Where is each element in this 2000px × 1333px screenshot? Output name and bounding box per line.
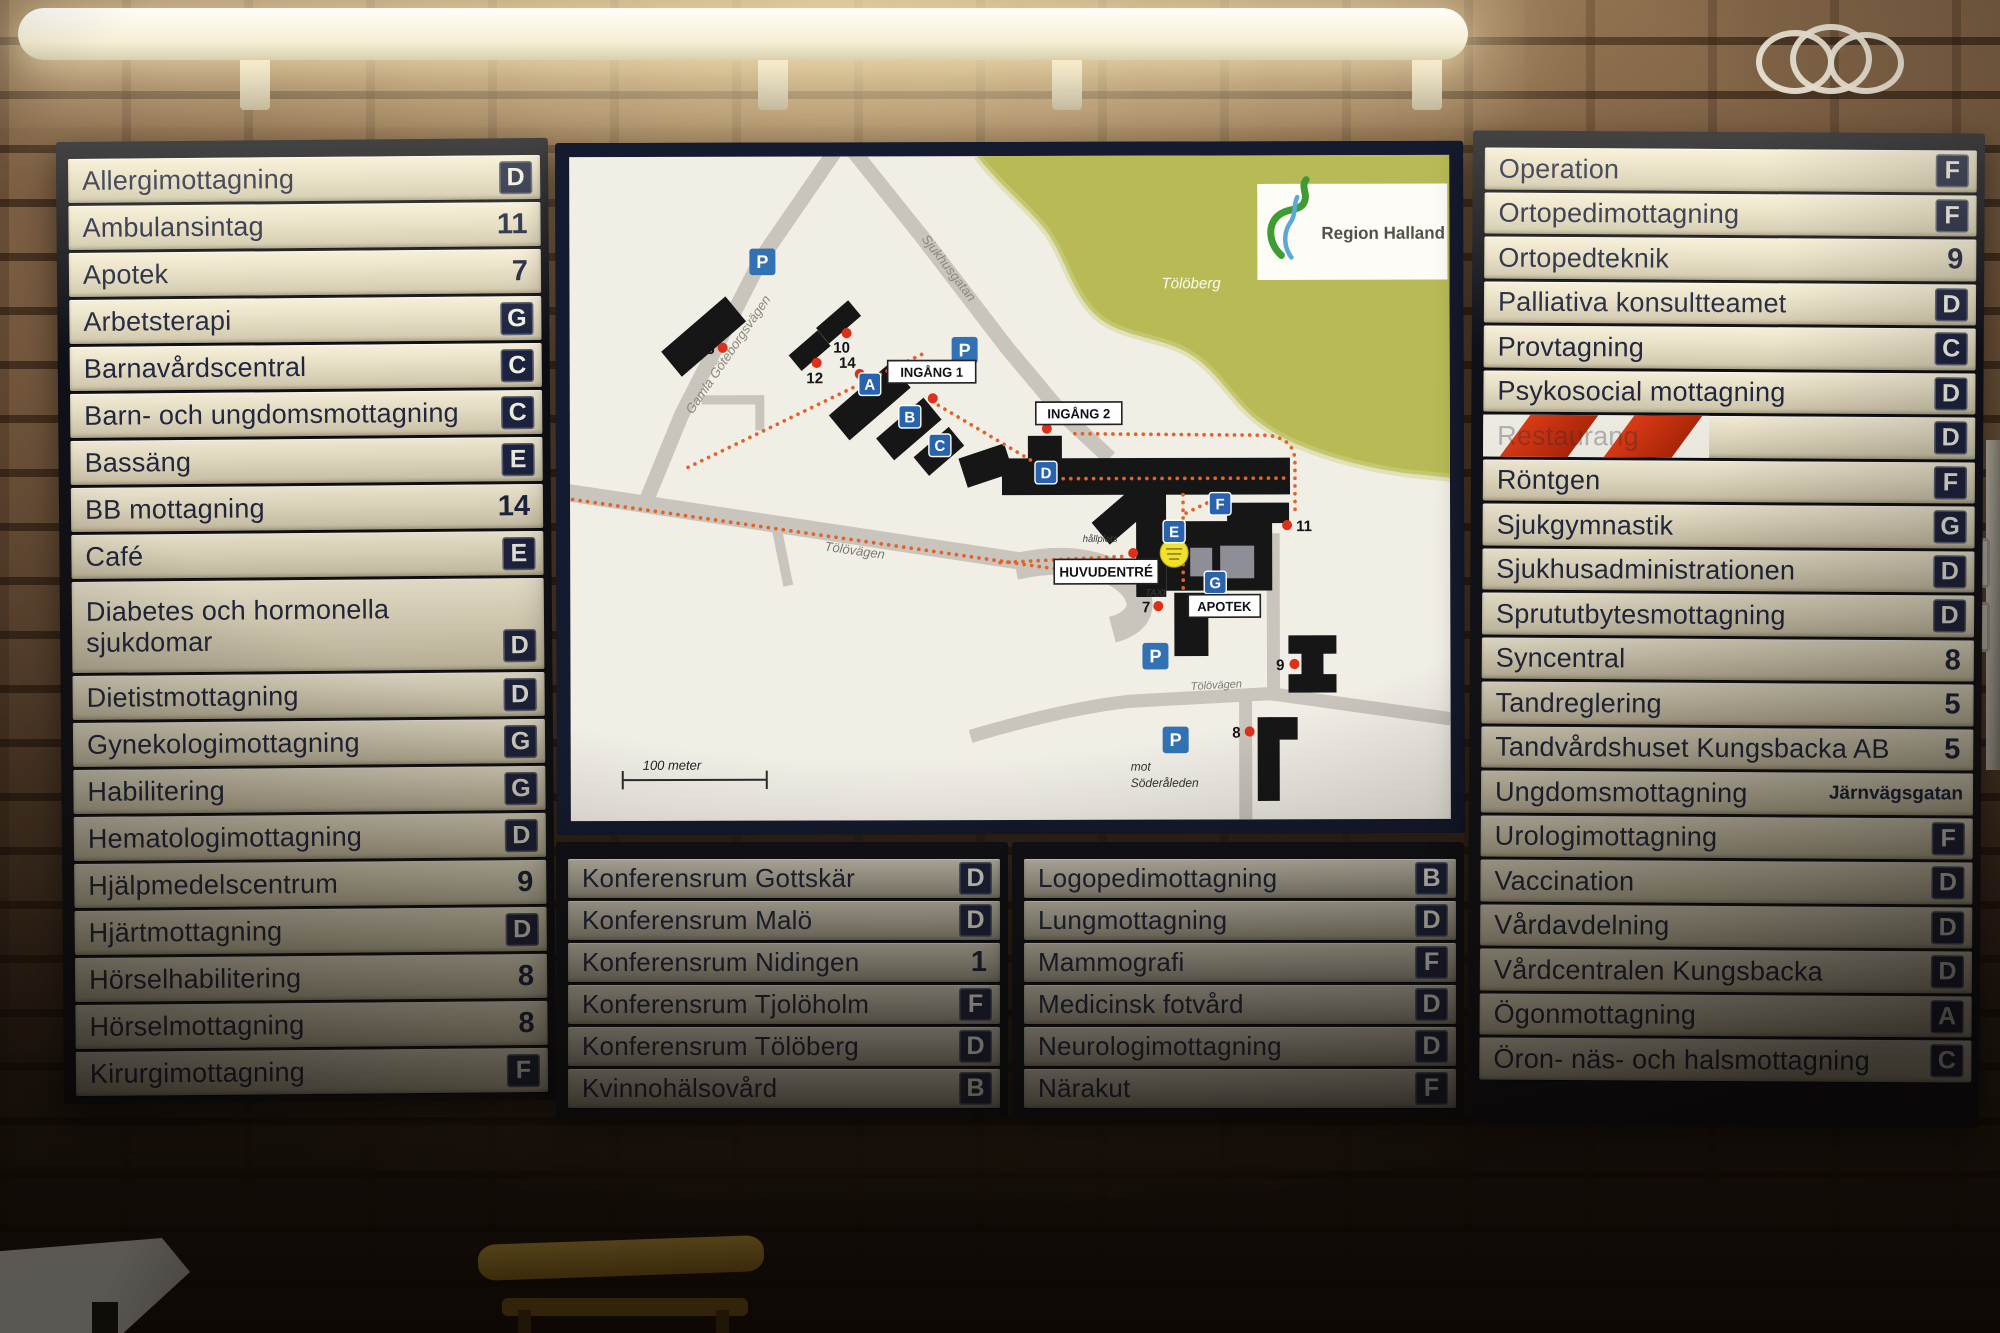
row-code: F bbox=[1910, 199, 1976, 232]
row-label: Apotek bbox=[69, 256, 475, 290]
row-label: Café bbox=[71, 538, 477, 572]
row-label: Psykosocial mottagning bbox=[1483, 376, 1909, 409]
directory-row: Hjärtmottagning D bbox=[75, 907, 547, 955]
row-label: Ögonmottagning bbox=[1480, 999, 1906, 1032]
clinics-directory-board: Logopedimottagning B Lungmottagning D Ma… bbox=[1012, 842, 1464, 1118]
directory-row: Tandreglering 5 bbox=[1481, 682, 1973, 727]
directory-row: Ambulansintag 11 bbox=[68, 202, 540, 250]
directory-row: Logopedimottagning B bbox=[1024, 859, 1456, 898]
directory-row: Barn- och ungdomsmottagning C bbox=[70, 390, 542, 438]
row-label: Barn- och ungdomsmottagning bbox=[70, 397, 476, 431]
row-label: Bassäng bbox=[70, 444, 476, 478]
directory-row: Hörselhabilitering 8 bbox=[75, 954, 547, 1002]
directory-row: Sprututbytesmottagning D bbox=[1482, 593, 1974, 638]
ingang2-label: INGÅNG 2 bbox=[1047, 406, 1110, 421]
row-label: Medicinsk fotvård bbox=[1024, 990, 1390, 1019]
row-code-badge: D bbox=[1415, 988, 1448, 1021]
directory-row: BB mottagning 14 bbox=[71, 484, 543, 532]
row-code-badge: G bbox=[504, 724, 537, 757]
row-label: Tandvårdshuset Kungsbacka AB bbox=[1481, 732, 1907, 765]
svg-text:F: F bbox=[1215, 496, 1224, 513]
directory-row: Barnavårdscentral C bbox=[70, 343, 542, 391]
directory-row: Hematologimottagning D bbox=[74, 813, 546, 861]
row-code-badge: 8 bbox=[1945, 644, 1966, 677]
row-code: D bbox=[1908, 599, 1974, 632]
svg-text:E: E bbox=[1169, 524, 1179, 541]
row-code: G bbox=[479, 771, 545, 805]
right-directory-board: Operation F Ortopedimottagning F Ortoped… bbox=[1467, 130, 1985, 1127]
row-label: Ortopedteknik bbox=[1484, 242, 1910, 275]
row-code-badge: 14 bbox=[498, 489, 536, 522]
directory-row: Neurologimottagning D bbox=[1024, 1027, 1456, 1066]
row-code: A bbox=[1906, 1000, 1972, 1033]
parking-icon: P bbox=[1149, 646, 1161, 666]
row-label: Vårdcentralen Kungsbacka bbox=[1480, 954, 1906, 987]
directory-row: Apotek 7 bbox=[69, 249, 541, 297]
row-code: D bbox=[1390, 988, 1456, 1021]
row-label: Restaurang bbox=[1483, 420, 1909, 453]
row-code-badge: B bbox=[1415, 862, 1448, 895]
row-label: Allergimottagning bbox=[68, 162, 474, 196]
directory-row: Allergimottagning D bbox=[68, 155, 540, 203]
row-label: Mammografi bbox=[1024, 948, 1390, 977]
directory-row: Restaurang D bbox=[1483, 415, 1975, 460]
directory-row: Lungmottagning D bbox=[1024, 901, 1456, 940]
row-label: Arbetsterapi bbox=[69, 303, 475, 337]
table-leg bbox=[92, 1302, 118, 1333]
row-label: Konferensrum Tjolöholm bbox=[568, 990, 934, 1019]
row-label: Hörselmottagning bbox=[75, 1008, 481, 1042]
row-code-badge: 7 bbox=[512, 255, 533, 288]
left-directory-panel: Allergimottagning D Ambulansintag 11 Apo… bbox=[56, 138, 556, 1104]
row-label: Hematologimottagning bbox=[74, 820, 480, 854]
row-label: Närakut bbox=[1024, 1074, 1390, 1103]
row-code: F bbox=[1390, 1072, 1456, 1105]
row-label: Ambulansintag bbox=[68, 209, 474, 243]
row-code: 5 bbox=[1907, 688, 1973, 721]
parking-icon: P bbox=[959, 340, 971, 360]
directory-row: Ögonmottagning A bbox=[1480, 993, 1972, 1038]
row-code: F bbox=[934, 988, 1000, 1021]
row-code-badge: D bbox=[503, 629, 536, 662]
row-label: Palliativa konsultteamet bbox=[1484, 287, 1910, 320]
row-label: Vaccination bbox=[1480, 865, 1906, 898]
lamp-bracket bbox=[240, 56, 270, 110]
row-label: Syncentral bbox=[1482, 643, 1908, 676]
row-code-badge: D bbox=[1934, 422, 1967, 455]
lamp-bracket bbox=[1052, 56, 1082, 110]
row-code-badge: 9 bbox=[1947, 244, 1968, 277]
row-code: 11 bbox=[474, 207, 540, 241]
svg-text:C: C bbox=[934, 438, 945, 455]
scale-label: 100 meter bbox=[643, 758, 702, 773]
clinics-directory-panel: Logopedimottagning B Lungmottagning D Ma… bbox=[1012, 842, 1464, 1118]
row-code-badge: C bbox=[1935, 333, 1968, 366]
directory-row: Diabetes och hormonella sjukdomar D bbox=[72, 578, 545, 673]
row-code: 14 bbox=[477, 489, 543, 523]
directory-row: Röntgen F bbox=[1483, 459, 1975, 504]
directory-row: Habilitering G bbox=[73, 766, 545, 814]
row-label: BB mottagning bbox=[71, 491, 477, 525]
conference-directory-board: Konferensrum Gottskär D Konferensrum Mal… bbox=[556, 842, 1008, 1118]
road-label-sjukhusgatan: Sjukhusgatan bbox=[919, 231, 979, 304]
row-code-badge: D bbox=[1931, 956, 1964, 989]
row-code: D bbox=[481, 912, 547, 946]
row-label: Tandreglering bbox=[1481, 687, 1907, 720]
directory-row: Medicinsk fotvård D bbox=[1024, 985, 1456, 1024]
row-code: 8 bbox=[481, 1006, 547, 1040]
directory-row: Kirurgimottagning F bbox=[76, 1048, 548, 1096]
row-code: D bbox=[479, 677, 545, 711]
row-code: D bbox=[1910, 288, 1976, 321]
row-code: F bbox=[1907, 822, 1973, 855]
svg-text:5: 5 bbox=[706, 341, 714, 358]
directory-row: Café E bbox=[71, 531, 543, 579]
row-code: 7 bbox=[475, 254, 541, 288]
row-code-badge: D bbox=[506, 912, 539, 945]
row-code: F bbox=[1911, 154, 1977, 187]
toloberg-label: Tölöberg bbox=[1161, 275, 1221, 292]
row-code-badge: D bbox=[1931, 911, 1964, 944]
row-label: Operation bbox=[1485, 153, 1911, 186]
apotek-label: APOTEK bbox=[1197, 599, 1252, 614]
region-halland-wordmark: Region Halland bbox=[1321, 222, 1445, 243]
row-code-badge: F bbox=[1932, 822, 1965, 855]
row-code-badge: B bbox=[959, 1072, 992, 1105]
row-code: F bbox=[1909, 466, 1975, 499]
row-code-badge: 5 bbox=[1944, 733, 1965, 766]
svg-text:9: 9 bbox=[1276, 657, 1284, 674]
svg-text:G: G bbox=[1209, 575, 1221, 592]
row-label: Hörselhabilitering bbox=[75, 961, 481, 995]
row-code: B bbox=[1390, 862, 1456, 895]
parking-icon: P bbox=[756, 252, 768, 272]
row-code: 9 bbox=[480, 865, 546, 899]
conference-directory-panel: Konferensrum Gottskär D Konferensrum Mal… bbox=[556, 842, 1008, 1118]
directory-row: Sjukhusadministrationen D bbox=[1482, 548, 1974, 593]
row-label: Diabetes och hormonella sjukdomar bbox=[72, 594, 479, 659]
row-code-badge: D bbox=[499, 161, 532, 194]
row-label: Provtagning bbox=[1484, 331, 1910, 364]
directory-row: Sjukgymnastik G bbox=[1483, 504, 1975, 549]
directory-row: Gynekologimottagning G bbox=[73, 719, 545, 767]
svg-text:7: 7 bbox=[1142, 599, 1150, 616]
row-code: D bbox=[1906, 911, 1972, 944]
row-code: C bbox=[1910, 332, 1976, 365]
directory-row: Konferensrum Nidingen 1 bbox=[568, 943, 1000, 982]
directory-row: Ortopedteknik 9 bbox=[1484, 237, 1976, 282]
row-label: Lungmottagning bbox=[1024, 906, 1390, 935]
parking-icon: P bbox=[1170, 730, 1182, 750]
site-map-frame: Tölöberg Gamla Göteborgsvägen Sjukhusgat… bbox=[555, 141, 1465, 835]
svg-text:14: 14 bbox=[839, 355, 856, 372]
row-code: B bbox=[934, 1072, 1000, 1105]
row-code-badge: F bbox=[1415, 946, 1448, 979]
svg-text:A: A bbox=[864, 377, 875, 394]
row-label: Sjukgymnastik bbox=[1483, 509, 1909, 542]
svg-text:8: 8 bbox=[1232, 725, 1240, 742]
row-code-badge: G bbox=[1934, 511, 1967, 544]
row-code: F bbox=[1390, 946, 1456, 979]
wooden-chair bbox=[478, 1240, 778, 1333]
svg-text:B: B bbox=[904, 409, 915, 426]
row-label: Gynekologimottagning bbox=[73, 726, 479, 760]
row-code: D bbox=[474, 160, 540, 194]
directory-row: Dietistmottagning D bbox=[72, 672, 544, 720]
row-code-badge: C bbox=[501, 349, 534, 382]
row-code: C bbox=[476, 395, 542, 429]
directory-row: Provtagning C bbox=[1484, 326, 1976, 371]
scale-bar bbox=[623, 771, 767, 790]
row-code-badge: F bbox=[1934, 466, 1967, 499]
row-code: 5 bbox=[1907, 733, 1973, 766]
row-code: D bbox=[934, 1030, 1000, 1063]
row-label: Dietistmottagning bbox=[73, 679, 479, 713]
directory-row: Konferensrum Gottskär D bbox=[568, 859, 1000, 898]
row-label: Neurologimottagning bbox=[1024, 1032, 1390, 1061]
row-code-badge: A bbox=[1931, 1000, 1964, 1033]
row-code: 9 bbox=[1910, 243, 1976, 276]
row-code-badge: 8 bbox=[518, 1006, 539, 1039]
row-label: Konferensrum Malö bbox=[568, 906, 934, 935]
directory-row: Urologimottagning F bbox=[1481, 815, 1973, 860]
directory-row: Tandvårdshuset Kungsbacka AB 5 bbox=[1481, 726, 1973, 771]
row-code-badge: Järnvägsgatan bbox=[1829, 782, 1965, 805]
row-code-badge: F bbox=[1415, 1072, 1448, 1105]
row-code: D bbox=[478, 629, 544, 663]
row-label: Ortopedimottagning bbox=[1484, 198, 1910, 231]
row-code-badge: G bbox=[504, 771, 537, 804]
directory-row: Palliativa konsultteamet D bbox=[1484, 281, 1976, 326]
directory-row: Syncentral 8 bbox=[1482, 637, 1974, 682]
row-code-badge: 5 bbox=[1944, 689, 1965, 722]
svg-text:12: 12 bbox=[806, 370, 823, 387]
row-code-badge: D bbox=[504, 677, 537, 710]
row-code: E bbox=[476, 442, 542, 476]
taxi-label: TAXI bbox=[1145, 588, 1166, 599]
row-code-badge: D bbox=[1934, 377, 1967, 410]
row-label: Kirurgimottagning bbox=[76, 1055, 482, 1089]
mot-soderaleden-label: mot bbox=[1131, 759, 1152, 773]
directory-row: Bassäng E bbox=[70, 437, 542, 485]
directory-row: Vårdavdelning D bbox=[1480, 904, 1972, 949]
row-code-badge: D bbox=[505, 818, 538, 851]
row-code: C bbox=[476, 348, 542, 382]
region-halland-logo: Region Halland bbox=[1257, 179, 1447, 280]
huvudentre-label: HUVUDENTRÉ bbox=[1059, 564, 1153, 579]
lamp-bracket bbox=[758, 56, 788, 110]
directory-row: Vårdcentralen Kungsbacka D bbox=[1480, 949, 1972, 994]
row-label: Hjärtmottagning bbox=[75, 914, 481, 948]
directory-row: Konferensrum Tölöberg D bbox=[568, 1027, 1000, 1066]
row-label: Sjukhusadministrationen bbox=[1482, 554, 1908, 587]
row-label: Vårdavdelning bbox=[1480, 910, 1906, 943]
row-code-badge: 1 bbox=[971, 946, 992, 979]
row-code-badge: D bbox=[1415, 1030, 1448, 1063]
directory-row: Hörselmottagning 8 bbox=[75, 1001, 547, 1049]
directory-row: Närakut F bbox=[1024, 1069, 1456, 1108]
row-code-badge: F bbox=[1935, 199, 1968, 232]
row-code-badge: C bbox=[1930, 1045, 1963, 1078]
lamp-bracket bbox=[1412, 56, 1442, 110]
directory-row: Kvinnohälsovård B bbox=[568, 1069, 1000, 1108]
row-code-badge: D bbox=[1415, 904, 1448, 937]
row-code-badge: C bbox=[501, 396, 534, 429]
row-code: D bbox=[1908, 555, 1974, 588]
row-code: D bbox=[1906, 955, 1972, 988]
soderaleden-label: Söderåleden bbox=[1131, 776, 1199, 790]
row-label: Barnavårdscentral bbox=[70, 350, 476, 384]
directory-row: Konferensrum Tjolöholm F bbox=[568, 985, 1000, 1024]
row-code: D bbox=[480, 818, 546, 852]
row-code-badge: E bbox=[501, 442, 534, 475]
coiled-cable bbox=[1756, 16, 1906, 96]
row-code: D bbox=[934, 904, 1000, 937]
row-code: D bbox=[934, 862, 1000, 895]
row-code-badge: D bbox=[1933, 555, 1966, 588]
fluorescent-light bbox=[18, 8, 1468, 60]
row-label: Konferensrum Gottskär bbox=[568, 864, 934, 893]
svg-text:D: D bbox=[1041, 465, 1052, 482]
row-label: Konferensrum Tölöberg bbox=[568, 1032, 934, 1061]
site-map: Tölöberg Gamla Göteborgsvägen Sjukhusgat… bbox=[569, 155, 1451, 821]
row-code: Järnvägsgatan bbox=[1907, 783, 1973, 805]
row-label: Konferensrum Nidingen bbox=[568, 948, 934, 977]
row-code: D bbox=[1390, 1030, 1456, 1063]
site-map-board: Tölöberg Gamla Göteborgsvägen Sjukhusgat… bbox=[555, 141, 1465, 835]
row-code-badge: F bbox=[1936, 155, 1969, 188]
row-label: Logopedimottagning bbox=[1024, 864, 1390, 893]
hospital-directory-photo: Allergimottagning D Ambulansintag 11 Apo… bbox=[0, 0, 2000, 1333]
row-label: Hjälpmedelscentrum bbox=[74, 867, 480, 901]
row-code: D bbox=[1390, 904, 1456, 937]
directory-row: Hjälpmedelscentrum 9 bbox=[74, 860, 546, 908]
directory-row: Arbetsterapi G bbox=[69, 296, 541, 344]
row-label: Öron- näs- och halsmottagning bbox=[1479, 1043, 1905, 1076]
row-code: G bbox=[479, 724, 545, 758]
row-label: Kvinnohälsovård bbox=[568, 1074, 934, 1103]
row-code-badge: D bbox=[1931, 867, 1964, 900]
row-code: D bbox=[1909, 377, 1975, 410]
row-code: F bbox=[482, 1053, 548, 1087]
row-code: 1 bbox=[934, 946, 1000, 979]
row-label: Sprututbytesmottagning bbox=[1482, 598, 1908, 631]
row-code: G bbox=[1909, 510, 1975, 543]
row-code: D bbox=[1906, 866, 1972, 899]
row-code: 8 bbox=[481, 959, 547, 993]
row-code-badge: D bbox=[959, 904, 992, 937]
row-code: D bbox=[1909, 421, 1975, 454]
row-code-badge: E bbox=[502, 536, 535, 569]
row-code-badge: D bbox=[959, 1030, 992, 1063]
directory-row: Ortopedimottagning F bbox=[1484, 192, 1976, 237]
row-code: 8 bbox=[1908, 644, 1974, 677]
directory-row: Operation F bbox=[1485, 148, 1977, 193]
row-code-badge: 8 bbox=[518, 959, 539, 992]
row-code: E bbox=[477, 536, 543, 570]
right-directory-panel: Operation F Ortopedimottagning F Ortoped… bbox=[1467, 130, 1985, 1127]
row-code-badge: F bbox=[959, 988, 992, 1021]
row-code-badge: D bbox=[1933, 600, 1966, 633]
row-code-badge: G bbox=[500, 302, 533, 335]
hallplats-label: hållplats bbox=[1083, 534, 1118, 545]
row-label: Röntgen bbox=[1483, 465, 1909, 498]
directory-row: Öron- näs- och halsmottagning C bbox=[1479, 1038, 1971, 1083]
row-code-badge: D bbox=[1935, 288, 1968, 321]
directory-row: Psykosocial mottagning D bbox=[1483, 370, 1975, 415]
row-label: Urologimottagning bbox=[1481, 821, 1907, 854]
row-code-badge: 9 bbox=[517, 865, 538, 898]
row-label: Habilitering bbox=[73, 773, 479, 807]
ingang1-label: INGÅNG 1 bbox=[900, 365, 963, 380]
row-code: G bbox=[475, 301, 541, 335]
left-directory-board: Allergimottagning D Ambulansintag 11 Apo… bbox=[56, 138, 556, 1104]
directory-row: Mammografi F bbox=[1024, 943, 1456, 982]
row-code-badge: F bbox=[507, 1053, 540, 1086]
svg-text:11: 11 bbox=[1296, 518, 1312, 535]
directory-row: Vaccination D bbox=[1480, 860, 1972, 905]
row-code: C bbox=[1905, 1044, 1971, 1077]
row-code-badge: 11 bbox=[497, 208, 533, 241]
row-code-badge: D bbox=[959, 862, 992, 895]
directory-row: Konferensrum Malö D bbox=[568, 901, 1000, 940]
directory-row: Ungdomsmottagning Järnvägsgatan bbox=[1481, 771, 1973, 816]
